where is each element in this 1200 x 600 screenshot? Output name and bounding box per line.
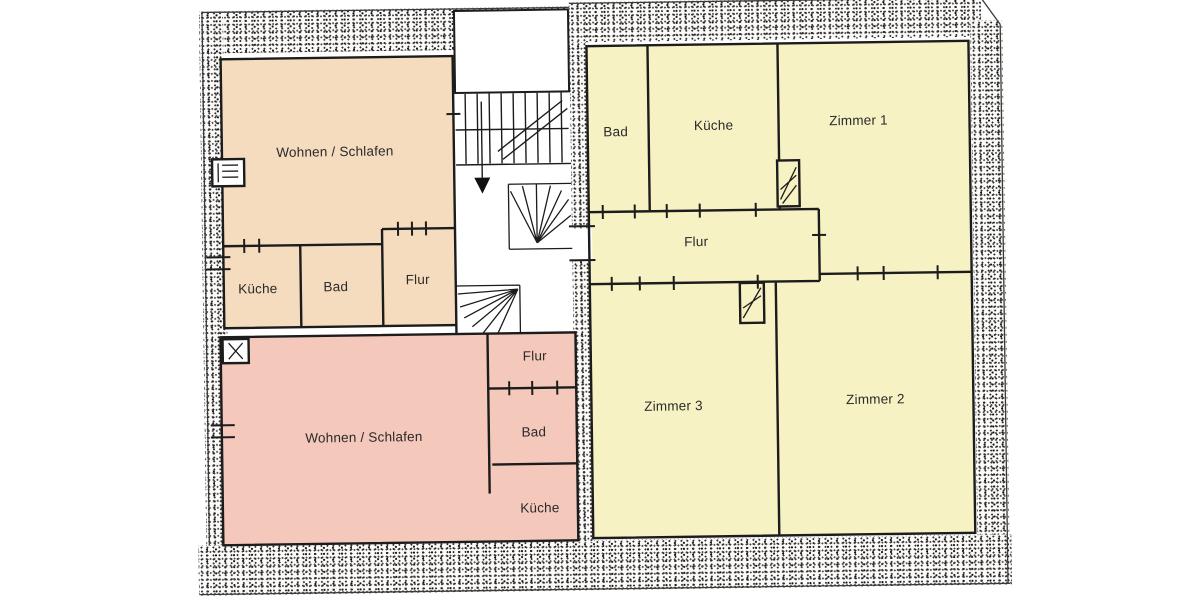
room-label-bad-bottom-left: Bad (521, 424, 546, 439)
room-label-wohnen-schlafen-bottom: Wohnen / Schlafen (305, 429, 422, 446)
room-label-bad-right: Bad (603, 124, 628, 139)
room-label-kueche-top-left: Küche (238, 281, 277, 297)
floor-plan: Wohnen / Schlafen Küche Bad Flur Wohnen … (0, 0, 1200, 600)
room-label-flur-right: Flur (684, 234, 708, 249)
stair-flight (455, 92, 571, 178)
stair-direction-arrow (474, 178, 490, 194)
room-label-kueche-right: Küche (694, 118, 733, 134)
room-label-zimmer-3: Zimmer 3 (644, 398, 703, 414)
room-label-flur-top-left: Flur (406, 272, 430, 287)
room-label-bad-top-left: Bad (323, 279, 348, 294)
room-label-zimmer-2: Zimmer 2 (846, 391, 905, 407)
winder-stair-lower (456, 285, 521, 335)
wall-linework (0, 0, 1200, 600)
floor-plan-canvas: Wohnen / Schlafen Küche Bad Flur Wohnen … (0, 0, 1200, 600)
room-label-kueche-bottom-left: Küche (520, 500, 559, 516)
outer-scan-outline (192, 0, 1010, 595)
room-label-zimmer-1: Zimmer 1 (829, 112, 888, 128)
room-label-wohnen-schlafen-top: Wohnen / Schlafen (276, 143, 393, 160)
room-label-flur-bottom-left: Flur (523, 348, 547, 363)
winder-stair-upper (508, 183, 572, 249)
